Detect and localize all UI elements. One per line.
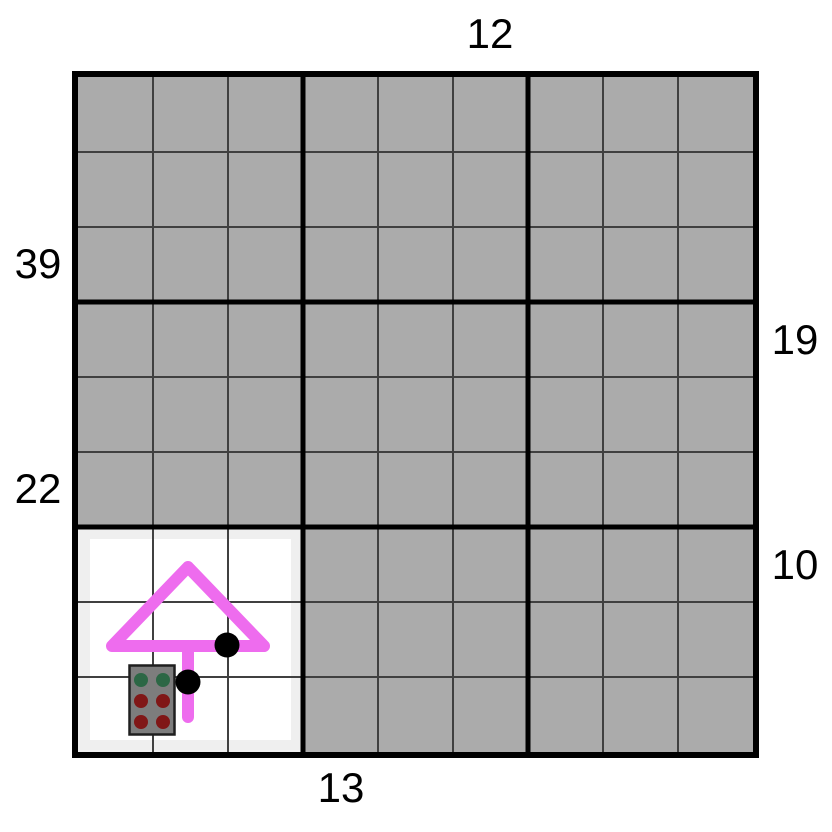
berry-dot-green (156, 673, 170, 687)
berry-dot-red (156, 715, 170, 729)
berry-dot-red (156, 694, 170, 708)
berry-dot-red (134, 694, 148, 708)
game-board[interactable] (72, 71, 759, 758)
berry-dot-green (134, 673, 148, 687)
clue-bottom: 13 (318, 767, 365, 809)
board-canvas (78, 77, 753, 752)
berry-cluster-icon (130, 666, 175, 735)
clue-left-1: 39 (15, 243, 62, 285)
clue-left-2: 22 (15, 468, 62, 510)
path-dot-2 (176, 670, 201, 695)
clue-right-1: 19 (772, 319, 819, 361)
clue-right-2: 10 (772, 544, 819, 586)
berry-dot-red (134, 715, 148, 729)
path-dot-1 (215, 633, 240, 658)
clue-top: 12 (467, 13, 514, 55)
